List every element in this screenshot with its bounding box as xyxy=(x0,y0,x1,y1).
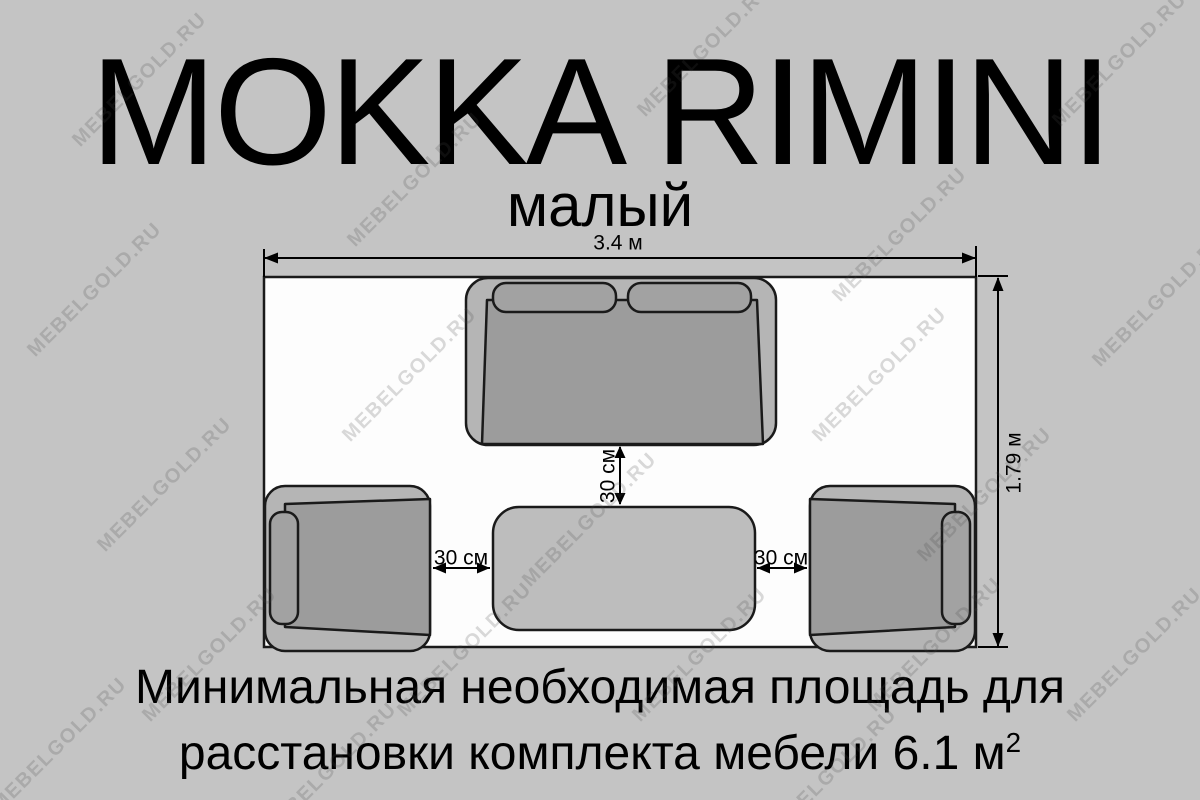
armchair-left-back-cushion xyxy=(270,512,298,624)
caption: Минимальная необходимая площадь для расс… xyxy=(0,660,1200,781)
armchair-left-seat xyxy=(285,499,430,635)
armchair-right-back-cushion xyxy=(942,512,970,624)
room-depth-label: 1.79 м xyxy=(1004,432,1025,493)
sofa-table-gap-label: 30 см xyxy=(598,449,619,503)
sofa xyxy=(466,278,776,445)
right-chair-table-gap-label: 30 см xyxy=(754,548,808,569)
caption-line1: Минимальная необходимая площадь для xyxy=(0,660,1200,715)
armchair-left xyxy=(265,486,430,651)
armchair-right xyxy=(810,486,975,651)
caption-superscript: 2 xyxy=(1006,727,1021,758)
caption-line2: расстановки комплекта мебели 6.1 м2 xyxy=(0,715,1200,781)
sofa-seat xyxy=(482,300,763,444)
sofa-back-cushion-left xyxy=(493,283,616,312)
armchair-right-seat xyxy=(810,499,955,635)
sofa-back-cushion-right xyxy=(628,283,751,312)
left-chair-table-gap-label: 30 см xyxy=(434,548,488,569)
furniture-layout-poster: MOKKA RIMINI малый xyxy=(0,0,1200,800)
room-width-label: 3.4 м xyxy=(593,233,642,254)
coffee-table xyxy=(493,507,755,630)
